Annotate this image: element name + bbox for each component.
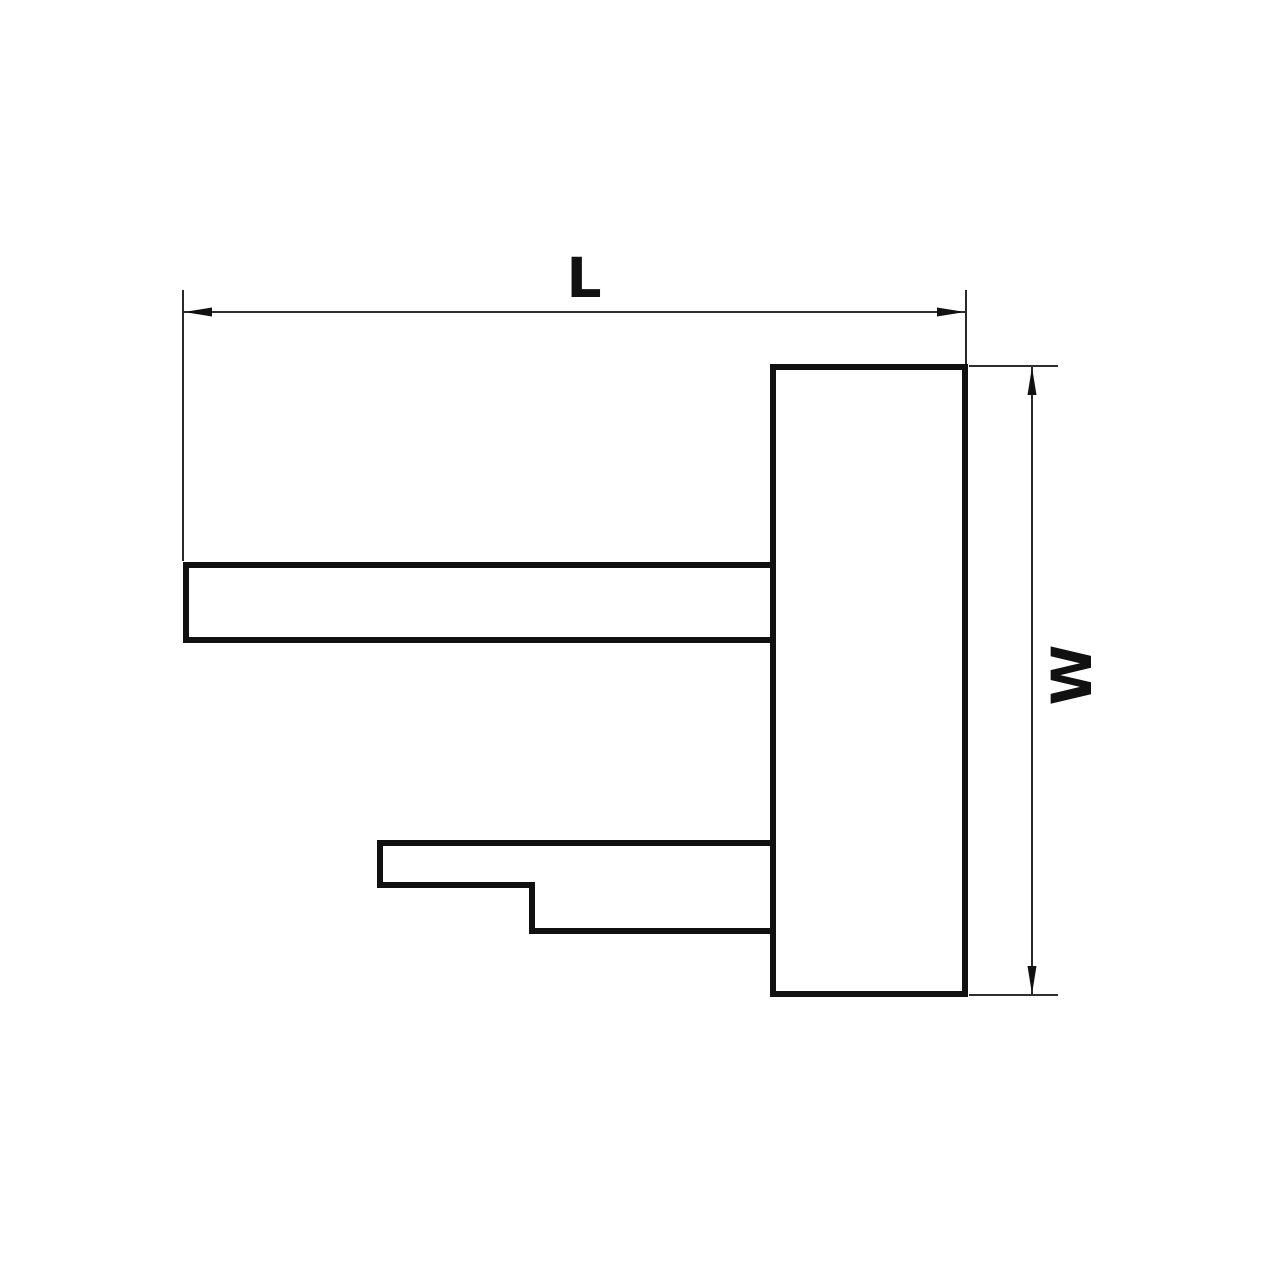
arrowhead-left-icon bbox=[184, 308, 212, 317]
part-upper-arm bbox=[186, 565, 773, 640]
dimension-length-group: L bbox=[183, 246, 966, 561]
dimension-label-length: L bbox=[566, 246, 601, 310]
arrowhead-right-icon bbox=[937, 308, 965, 317]
arrowhead-up-icon bbox=[1028, 367, 1037, 395]
drawing-canvas: L W bbox=[0, 0, 1280, 1280]
dimension-label-width: W bbox=[1040, 645, 1104, 706]
part-outline-group bbox=[186, 367, 965, 994]
arrowhead-down-icon bbox=[1028, 966, 1037, 994]
dimension-width-group: W bbox=[969, 366, 1104, 995]
part-body-rect bbox=[773, 367, 965, 994]
part-lower-stepped-arm bbox=[380, 843, 773, 931]
technical-drawing-svg: L W bbox=[0, 0, 1280, 1280]
